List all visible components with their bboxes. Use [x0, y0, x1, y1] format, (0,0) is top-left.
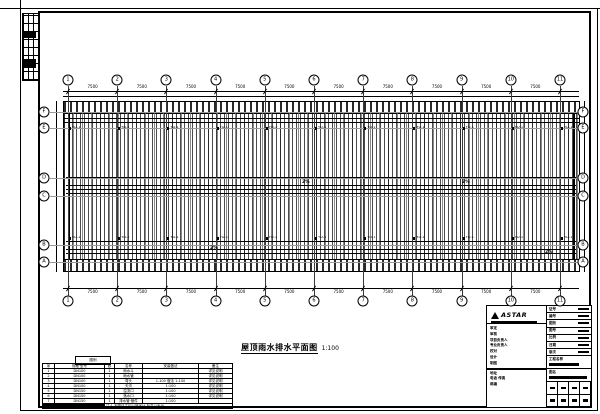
revision-grid-cell	[547, 382, 558, 394]
rain-drain-icon	[118, 127, 120, 130]
drawing-title-scale: 1:100	[322, 345, 339, 352]
rain-drain-label: YD-1	[564, 236, 572, 240]
sheet-info-row: 图别	[547, 320, 591, 327]
grid-bubble-right: C	[578, 191, 589, 202]
dimension-value-bottom: 7500	[334, 290, 344, 294]
rain-drain-label: YD-1	[170, 236, 178, 240]
logo-triangle-icon	[491, 312, 499, 319]
grid-bubble-top: 11	[555, 75, 566, 86]
frame-top-line	[0, 8, 600, 9]
drawing-title-text: 屋顶雨水排水平面图	[241, 343, 318, 354]
revision-mark	[561, 399, 566, 402]
dimension-value-top: 7500	[88, 85, 98, 89]
grid-bubble-top: 5	[259, 75, 270, 86]
signature-rows: 审定审核项目负责人专业负责人校对设计制图	[487, 324, 546, 367]
rain-drain-icon	[413, 237, 415, 240]
grid-line-vertical	[462, 86, 463, 296]
sheet-name-cell: 图名	[547, 369, 591, 382]
rain-drain-label: YD-1	[367, 126, 375, 130]
rain-drain-label: YD-1	[466, 126, 474, 130]
roof-gutter-line	[66, 249, 576, 250]
roof-gutter-line	[66, 193, 576, 194]
project-name-label: 工程名称	[549, 357, 589, 362]
rain-drain-icon	[364, 127, 366, 130]
grid-line-vertical	[166, 86, 167, 296]
revision-mark	[572, 399, 577, 402]
title-block-right-column: 证号编号图别图号比例日期版次 工程名称 图名	[547, 306, 591, 407]
logo-text: ASTAR	[501, 311, 527, 319]
grid-bubble-left: C	[39, 191, 50, 202]
rain-drain-icon	[118, 237, 120, 240]
rain-drain-icon	[315, 127, 317, 130]
rain-drain-icon	[69, 237, 71, 240]
dimension-value-bottom: 7500	[284, 290, 294, 294]
legend-note: 注:1 本图尺寸均以毫米计,标高以米计。	[105, 404, 233, 409]
dimension-value-bottom: 7500	[481, 290, 491, 294]
rain-drain-label: YD-1	[72, 126, 80, 130]
grid-bubble-top: 9	[456, 75, 467, 86]
binding-strip-filled-cell	[23, 31, 36, 38]
grid-bubble-bottom: 1	[63, 296, 74, 307]
logo-underline	[491, 321, 537, 323]
dimension-value-top: 7500	[383, 85, 393, 89]
revision-grid-cell	[547, 395, 558, 407]
sheet-info-label: 图号	[549, 328, 556, 333]
sheet-info-value	[578, 351, 589, 353]
revision-grid-cell	[558, 395, 569, 407]
rain-drain-label: YD-1	[170, 126, 178, 130]
sheet-name-value	[549, 376, 587, 379]
dimension-value-bottom: 7500	[235, 290, 245, 294]
revision-mark	[583, 387, 588, 390]
rain-drain-label: YD-1	[121, 236, 129, 240]
legend-stamp-cell	[43, 404, 105, 409]
grid-bubble-top: 3	[161, 75, 172, 86]
dimension-value-bottom: 7500	[530, 290, 540, 294]
rain-drain-label: YD-1	[220, 126, 228, 130]
grid-bubble-bottom: 5	[259, 296, 270, 307]
grid-line-horizontal	[50, 262, 578, 263]
grid-line-vertical	[265, 86, 266, 296]
dimension-value-bottom: 7500	[186, 290, 196, 294]
roof-inner-edge	[573, 113, 575, 259]
grid-bubble-right: D	[578, 173, 589, 184]
revision-mark	[550, 387, 555, 390]
sheet-info-row: 图号	[547, 328, 591, 335]
rain-drain-label: YD-1	[515, 236, 523, 240]
grid-bubble-bottom: 11	[555, 296, 566, 307]
dimension-value-top: 7500	[432, 85, 442, 89]
rain-drain-label: YD-1	[466, 236, 474, 240]
revision-grid-cell	[569, 382, 580, 394]
sheet-info-label: 编号	[549, 314, 556, 319]
address-rows: 地址电话 传真邮编	[487, 371, 546, 388]
roof-edge-line	[63, 122, 579, 123]
sheet-info-label: 图别	[549, 321, 556, 326]
rain-drain-label: YD-1	[318, 126, 326, 130]
slope-label: 2%	[210, 246, 218, 251]
revision-grid	[547, 382, 591, 407]
title-block-left-column: ASTAR 审定审核项目负责人专业负责人校对设计制图 地址电话 传真邮编	[487, 306, 547, 407]
grid-bubble-bottom: 2	[112, 296, 123, 307]
grid-line-horizontal	[50, 245, 578, 246]
rain-drain-icon	[217, 127, 219, 130]
grid-bubble-left: B	[39, 240, 50, 251]
frame-left-line	[20, 0, 21, 410]
rain-drain-icon	[463, 237, 465, 240]
grid-bubble-left: F	[39, 107, 50, 118]
rain-drain-icon	[217, 237, 219, 240]
grid-bubble-right: E	[578, 123, 589, 134]
dimension-value-bottom: 7500	[383, 290, 393, 294]
slope-label: 2%	[302, 180, 310, 185]
legend-table: 序规格·型号数名称安装做法备注1DN1001雨水斗详见说明2DN1001雨水管详…	[42, 363, 233, 409]
grid-bubble-top: 7	[358, 75, 369, 86]
grid-line-vertical	[314, 86, 315, 296]
roof-eave-band-bottom	[63, 259, 580, 272]
roof-gutter-line	[66, 253, 576, 254]
rain-drain-icon	[512, 127, 514, 130]
sheet-info-value	[578, 308, 589, 310]
rain-drain-label: YD-1	[220, 236, 228, 240]
revision-grid-cell	[569, 395, 580, 407]
grid-line-vertical	[363, 86, 364, 296]
dimension-value-top: 7500	[481, 85, 491, 89]
grid-bubble-left: A	[39, 257, 50, 268]
grid-bubble-bottom: 3	[161, 296, 172, 307]
sheet-info-label: 比例	[549, 335, 556, 340]
grid-line-vertical	[68, 86, 69, 296]
grid-bubble-bottom: 7	[358, 296, 369, 307]
rain-drain-icon	[266, 127, 268, 130]
grid-line-vertical	[560, 86, 561, 296]
grid-bubble-left: E	[39, 123, 50, 134]
sheet-info-label: 证号	[549, 307, 556, 312]
grid-line-vertical	[117, 86, 118, 296]
sheet-info-row: 编号	[547, 313, 591, 320]
roof-edge-line	[63, 96, 579, 97]
sheet-info-rows: 证号编号图别图号比例日期版次	[547, 306, 591, 356]
legend-table-grid: 序规格·型号数名称安装做法备注1DN1001雨水斗详见说明2DN1001雨水管详…	[42, 363, 233, 409]
dimension-value-top: 7500	[186, 85, 196, 89]
rain-drain-icon	[413, 127, 415, 130]
grid-bubble-bottom: 8	[407, 296, 418, 307]
grid-bubble-right: A	[578, 257, 589, 268]
slope-label: 2%	[462, 180, 470, 185]
dimension-value-top: 7500	[284, 85, 294, 89]
title-block: ASTAR 审定审核项目负责人专业负责人校对设计制图 地址电话 传真邮编 证号编…	[486, 305, 592, 408]
binding-strip-table	[22, 13, 39, 81]
rain-drain-icon	[561, 127, 563, 130]
rain-drain-label: YD-1	[564, 126, 572, 130]
revision-mark	[561, 387, 566, 390]
roof-gutter-line	[66, 241, 576, 242]
sheet-info-label: 版次	[549, 350, 556, 355]
rain-drain-label: YD-1	[72, 236, 80, 240]
revision-grid-cell	[580, 382, 591, 394]
sheet-info-row: 日期	[547, 342, 591, 349]
sheet-info-value	[578, 322, 589, 324]
grid-bubble-left: D	[39, 173, 50, 184]
grid-bubble-top: 4	[210, 75, 221, 86]
grid-bubble-top: 1	[63, 75, 74, 86]
rain-drain-icon	[167, 237, 169, 240]
grid-bubble-top: 10	[505, 75, 516, 86]
dimension-value-top: 7500	[235, 85, 245, 89]
grid-bubble-bottom: 9	[456, 296, 467, 307]
project-name-cell: 工程名称	[547, 356, 591, 369]
sheet-info-row: 证号	[547, 306, 591, 313]
rain-drain-icon	[167, 127, 169, 130]
grid-bubble-right: B	[578, 240, 589, 251]
roof-gutter-line	[66, 185, 576, 186]
grid-line-horizontal	[50, 178, 578, 179]
dimension-value-top: 7500	[137, 85, 147, 89]
grid-bubble-top: 6	[309, 75, 320, 86]
roof-edge-line	[63, 118, 579, 119]
rain-drain-icon	[561, 237, 563, 240]
sheet-info-value	[578, 337, 589, 339]
revision-mark	[550, 399, 555, 402]
grid-bubble-bottom: 6	[309, 296, 320, 307]
grid-line-horizontal	[50, 112, 578, 113]
rain-drain-icon	[69, 127, 71, 130]
dimension-value-bottom: 7500	[88, 290, 98, 294]
binding-strip-filled-cell	[23, 59, 36, 68]
grid-line-vertical	[511, 86, 512, 296]
sheet-info-value	[578, 315, 589, 317]
grid-line-vertical	[412, 86, 413, 296]
grid-bubble-bottom: 10	[505, 296, 516, 307]
dimension-value-top: 7500	[530, 85, 540, 89]
slope-label: 2%	[545, 250, 553, 255]
rain-drain-label: YD-1	[515, 126, 523, 130]
rain-drain-icon	[463, 127, 465, 130]
frame-right-line	[597, 8, 598, 410]
grid-bubble-top: 8	[407, 75, 418, 86]
grid-line-vertical	[216, 86, 217, 296]
sheet-info-label: 日期	[549, 343, 556, 348]
dimension-value-bottom: 7500	[137, 290, 147, 294]
frame-bottom-line	[20, 410, 598, 411]
cad-sheet: 11223344556677889910101111FFEEDDCCBBAA 7…	[0, 0, 600, 414]
signature-row: 制图	[487, 361, 546, 367]
revision-grid-cell	[558, 382, 569, 394]
revision-grid-cell	[580, 395, 591, 407]
dimension-value-bottom: 7500	[432, 290, 442, 294]
rain-drain-icon	[315, 237, 317, 240]
rain-drain-icon	[364, 237, 366, 240]
dimension-line-top	[63, 91, 579, 92]
sheet-info-row: 比例	[547, 335, 591, 342]
rain-drain-label: YD-1	[269, 236, 277, 240]
rain-drain-label: YD-1	[416, 236, 424, 240]
roof-gutter-line	[66, 189, 576, 190]
revision-mark	[572, 387, 577, 390]
rain-drain-label: YD-1	[318, 236, 326, 240]
address-row: 邮编	[487, 382, 546, 388]
revision-mark	[583, 399, 588, 402]
project-name-value	[549, 363, 579, 366]
dimension-value-top: 7500	[334, 85, 344, 89]
sheet-name-label: 图名	[549, 370, 589, 375]
rain-drain-icon	[512, 237, 514, 240]
grid-line-horizontal	[50, 196, 578, 197]
rain-drain-label: YD-1	[367, 236, 375, 240]
drawing-title: 屋顶雨水排水平面图1:100	[90, 335, 490, 354]
grid-bubble-bottom: 4	[210, 296, 221, 307]
rain-drain-label: YD-1	[121, 126, 129, 130]
grid-bubble-top: 2	[112, 75, 123, 86]
sheet-info-row: 版次	[547, 349, 591, 356]
sheet-info-value	[578, 330, 589, 332]
sheet-info-value	[578, 344, 589, 346]
divider	[487, 368, 546, 370]
dimension-line-left	[56, 101, 57, 272]
rain-drain-label: YD-1	[416, 126, 424, 130]
rain-drain-label: YD-1	[269, 126, 277, 130]
rain-drain-icon	[266, 237, 268, 240]
grid-bubble-right: F	[578, 107, 589, 118]
